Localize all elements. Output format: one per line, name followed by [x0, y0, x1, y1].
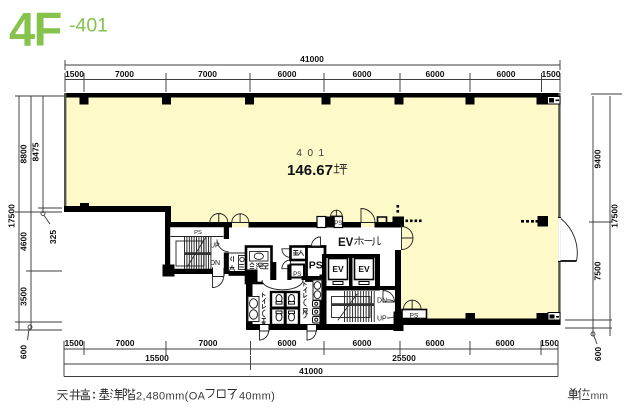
svg-text:15500: 15500 — [145, 353, 169, 363]
svg-text:EV: EV — [338, 237, 354, 249]
svg-text:8800: 8800 — [19, 144, 29, 163]
svg-text:4600: 4600 — [19, 232, 29, 251]
svg-text:40mm): 40mm) — [239, 390, 275, 402]
svg-text:6000: 6000 — [426, 338, 445, 348]
svg-text:mm: mm — [591, 390, 609, 402]
svg-text:UP: UP — [377, 316, 387, 323]
svg-text:325: 325 — [48, 230, 58, 244]
svg-text:8475: 8475 — [31, 142, 41, 161]
svg-text:PS: PS — [194, 230, 202, 236]
svg-text:4F: 4F — [9, 3, 61, 56]
svg-text:600: 600 — [593, 347, 603, 361]
svg-text:7000: 7000 — [198, 69, 217, 79]
svg-text:DN: DN — [210, 260, 220, 267]
svg-text:DN: DN — [377, 298, 387, 305]
svg-text:401: 401 — [296, 148, 329, 159]
svg-text:41000: 41000 — [300, 54, 324, 64]
svg-text:17500: 17500 — [7, 204, 17, 228]
svg-text:1500: 1500 — [65, 338, 84, 348]
svg-text:1500: 1500 — [65, 69, 84, 79]
svg-text:-401: -401 — [69, 15, 108, 37]
svg-text:6000: 6000 — [353, 69, 372, 79]
svg-text:1500: 1500 — [540, 338, 559, 348]
svg-text:6000: 6000 — [278, 69, 297, 79]
svg-text:6000: 6000 — [496, 338, 515, 348]
svg-text:7000: 7000 — [115, 69, 134, 79]
svg-text:3500: 3500 — [19, 287, 29, 306]
svg-text:7500: 7500 — [593, 261, 603, 280]
svg-text:6000: 6000 — [278, 338, 297, 348]
svg-text:17500: 17500 — [610, 204, 620, 228]
svg-text:PS: PS — [410, 313, 419, 320]
svg-text:2,480mm(OA: 2,480mm(OA — [136, 390, 206, 402]
svg-text:146.67: 146.67 — [287, 162, 333, 179]
svg-text:EV: EV — [358, 264, 370, 274]
svg-text:PS: PS — [309, 260, 323, 272]
svg-text:EV: EV — [332, 264, 344, 274]
svg-text:PS: PS — [293, 271, 301, 278]
svg-text:6000: 6000 — [353, 338, 372, 348]
svg-text:7000: 7000 — [116, 338, 135, 348]
svg-text:6000: 6000 — [497, 69, 516, 79]
svg-text:PS: PS — [334, 221, 342, 227]
svg-text:25500: 25500 — [392, 353, 416, 363]
svg-text:9400: 9400 — [593, 149, 603, 168]
svg-text:41000: 41000 — [299, 366, 323, 376]
svg-text:7000: 7000 — [199, 338, 218, 348]
svg-text:1500: 1500 — [542, 69, 561, 79]
svg-text:6000: 6000 — [426, 69, 445, 79]
svg-text:600: 600 — [19, 345, 29, 359]
